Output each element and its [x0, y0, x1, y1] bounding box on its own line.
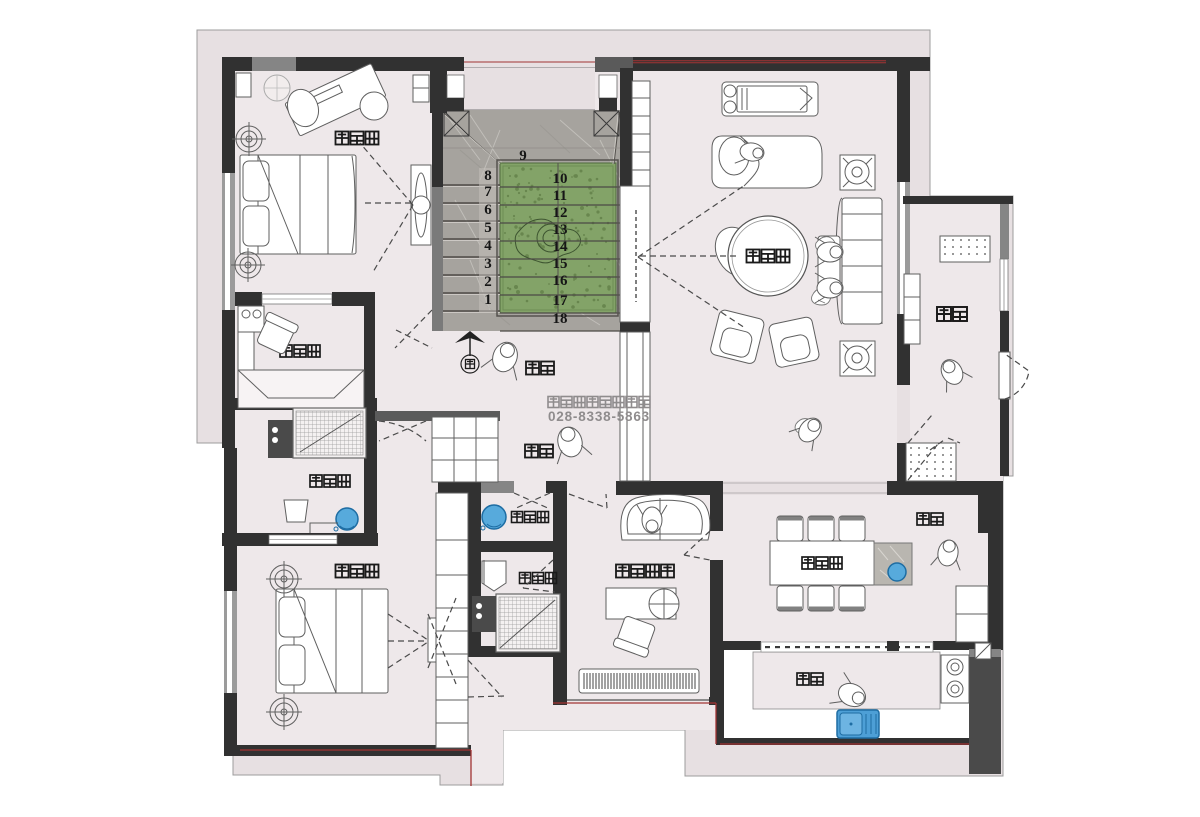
svg-text:15: 15 [553, 256, 568, 272]
svg-text:3: 3 [484, 256, 492, 272]
svg-text:18: 18 [553, 311, 568, 327]
svg-text:1: 1 [484, 292, 492, 308]
svg-text:8: 8 [484, 168, 492, 184]
svg-text:4: 4 [484, 238, 492, 254]
svg-text:028-8338-5863: 028-8338-5863 [548, 409, 650, 424]
svg-text:5: 5 [484, 220, 492, 236]
svg-text:6: 6 [484, 202, 492, 218]
svg-text:2: 2 [484, 274, 492, 290]
svg-text:12: 12 [553, 205, 568, 221]
svg-text:10: 10 [553, 171, 568, 187]
svg-text:7: 7 [484, 184, 492, 200]
svg-text:9: 9 [519, 148, 527, 164]
svg-text:11: 11 [553, 188, 567, 204]
svg-text:14: 14 [553, 239, 569, 255]
svg-text:17: 17 [553, 293, 569, 309]
svg-text:16: 16 [553, 273, 569, 289]
svg-text:13: 13 [553, 222, 568, 238]
